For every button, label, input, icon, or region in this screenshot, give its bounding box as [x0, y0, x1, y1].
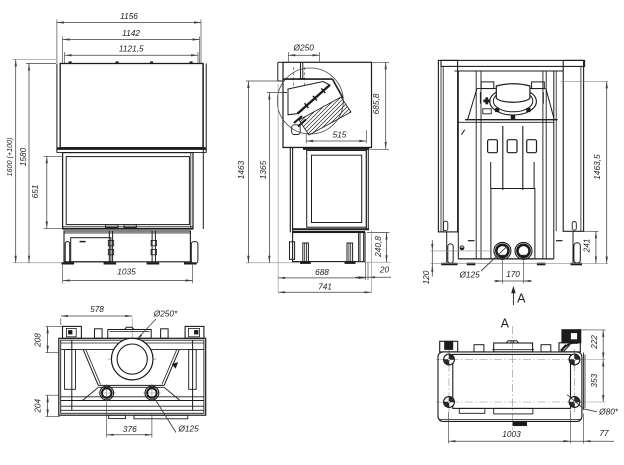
- svg-text:688: 688: [315, 267, 329, 277]
- svg-text:Ø250*: Ø250*: [153, 309, 178, 319]
- svg-text:120: 120: [421, 270, 431, 284]
- svg-text:Ø80*: Ø80*: [598, 406, 619, 416]
- svg-text:222: 222: [589, 335, 599, 350]
- svg-text:651: 651: [30, 185, 40, 199]
- svg-text:A: A: [501, 316, 510, 330]
- svg-text:1035: 1035: [117, 266, 136, 276]
- svg-text:515: 515: [333, 129, 347, 139]
- svg-text:1463,5: 1463,5: [592, 154, 602, 180]
- svg-text:1600 (+100): 1600 (+100): [5, 138, 14, 177]
- svg-text:741: 741: [318, 282, 332, 292]
- svg-text:578: 578: [90, 304, 104, 314]
- svg-text:204: 204: [32, 398, 42, 413]
- svg-text:Ø125: Ø125: [458, 270, 480, 280]
- svg-text:170: 170: [506, 269, 520, 279]
- svg-text:77: 77: [599, 428, 609, 438]
- svg-text:1365: 1365: [258, 160, 268, 179]
- svg-text:1142: 1142: [122, 28, 140, 38]
- svg-text:1463: 1463: [236, 160, 246, 179]
- svg-text:1580: 1580: [18, 147, 28, 166]
- svg-text:241: 241: [581, 239, 591, 254]
- svg-text:Ø250: Ø250: [293, 43, 315, 53]
- svg-text:376: 376: [123, 424, 137, 434]
- svg-text:A: A: [517, 292, 526, 306]
- svg-text:240,8: 240,8: [373, 236, 383, 258]
- svg-text:685,8: 685,8: [371, 93, 381, 114]
- svg-text:353: 353: [589, 373, 599, 387]
- svg-text:1003: 1003: [502, 429, 521, 439]
- svg-text:1156: 1156: [120, 11, 138, 21]
- svg-text:20: 20: [379, 264, 390, 274]
- svg-text:208: 208: [32, 333, 42, 348]
- svg-text:1121,5: 1121,5: [119, 44, 144, 54]
- svg-text:Ø125: Ø125: [177, 424, 199, 434]
